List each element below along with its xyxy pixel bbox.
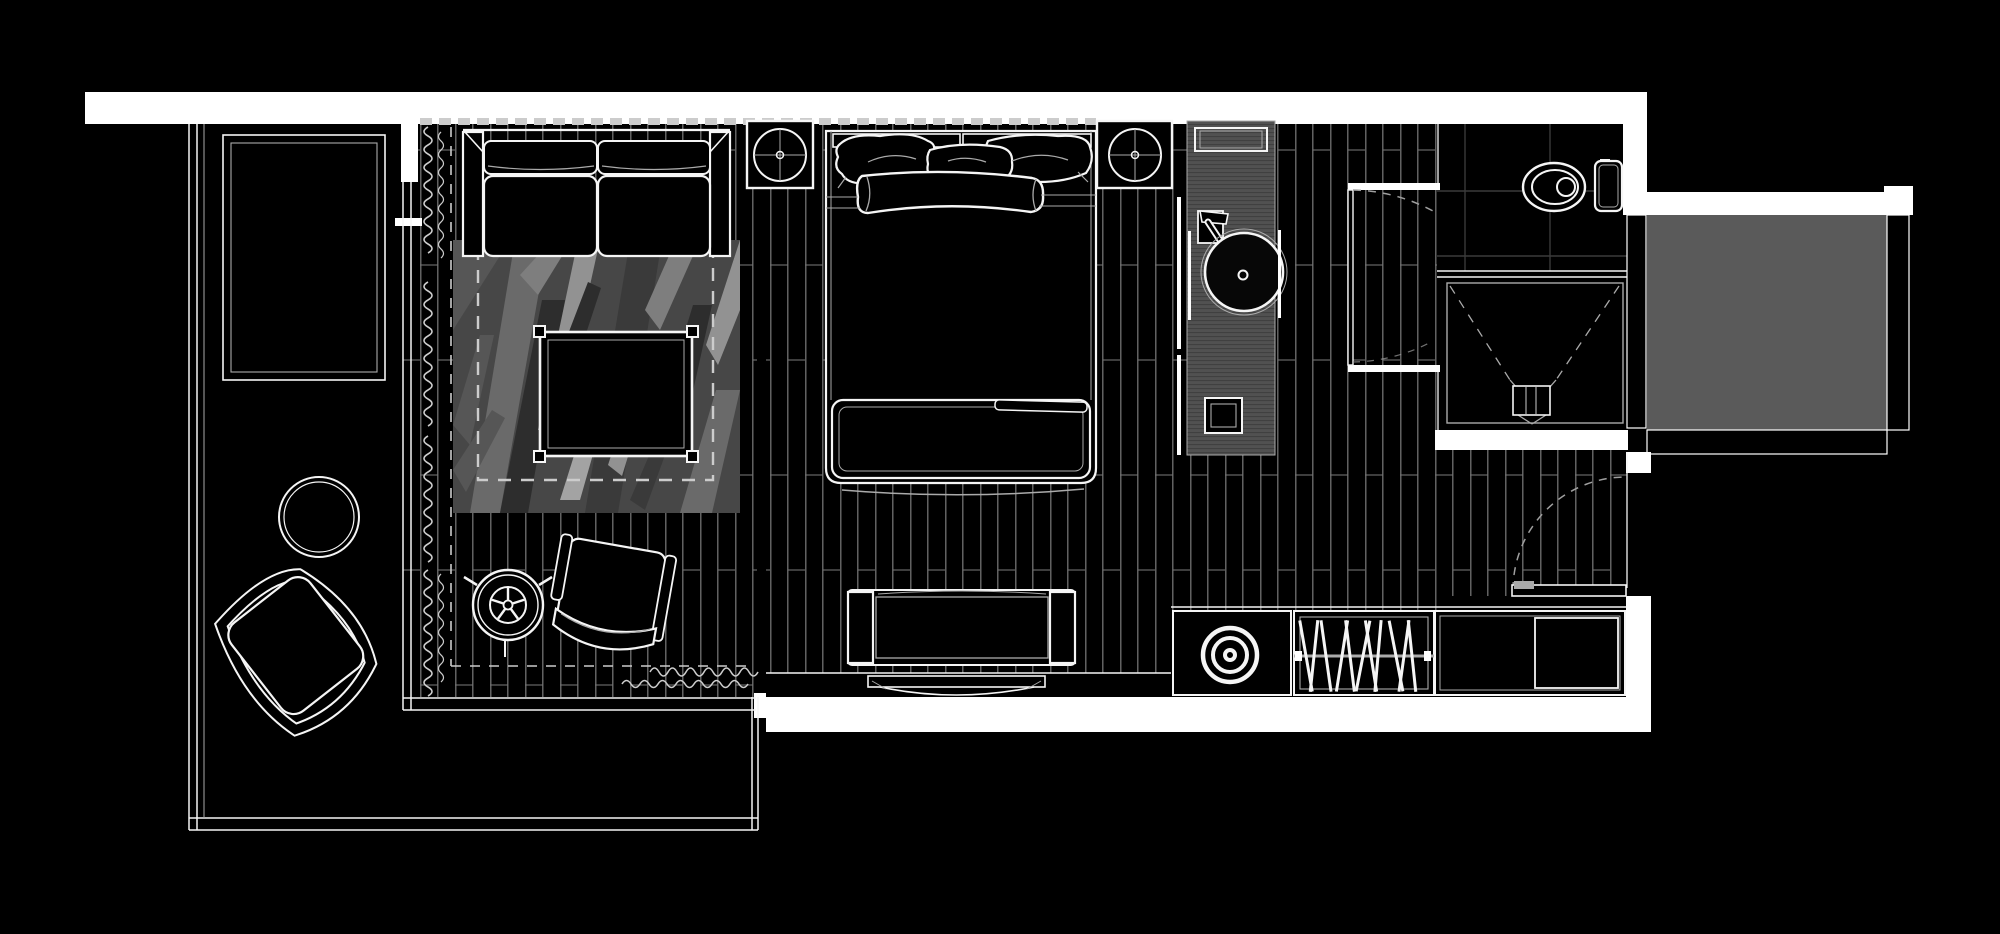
window-pier [401,120,418,182]
bathroom-right-wall [1623,124,1647,215]
round-side-table [279,477,359,557]
mat-fringe-right [1887,215,1909,430]
shower-drain [1513,386,1550,415]
coffee-table [534,326,698,462]
sofa [463,130,730,256]
vanity-accent-left [1188,231,1191,320]
cabinet-run [1171,607,1626,695]
double-bed [826,131,1096,495]
blanket-roll [857,172,1043,213]
lounge-chair [208,557,387,740]
table-lamp [1109,129,1161,181]
vanity-accent-right [1278,230,1281,318]
wardrobe-cabinet [1435,611,1625,695]
bath-door-stub-bottom [1348,365,1440,372]
entry-door-jamb [1626,452,1651,473]
mat-fringe-bottom [1647,430,1887,454]
floor-plan-canvas [0,0,2000,934]
vanity-counter [1187,121,1287,455]
toilet [1523,160,1622,211]
table-lamp [754,129,806,181]
closet-panel-upper [1177,197,1181,349]
wall-tv [868,676,1045,695]
foot-duvet [832,400,1090,478]
wing-bottom-wall [403,698,756,710]
bathroom-bottom-wall [1435,430,1628,450]
wardrobe-hanger-cabinet [1294,611,1434,695]
porch-top-wall [1647,192,1887,215]
closet-panel-lower [1177,355,1181,455]
bath-door-stub-top [1348,183,1440,190]
wardrobe-sink-cabinet [1173,611,1291,695]
right-wall [1626,596,1651,732]
media-bench [848,590,1075,665]
window-sill-stub [395,218,422,226]
vanity-box [1205,398,1242,433]
bottom-wall [766,697,1651,732]
nightstand-right [1097,121,1172,188]
wing-wall-cap [754,693,766,718]
floor-plan-drawing [0,0,2000,934]
entry-door-handle [1514,581,1534,589]
mat-fringe-left [1627,215,1646,428]
round-basin [1201,229,1287,315]
outdoor-porch-mat [1627,215,1909,454]
nightstand-left [747,121,813,188]
porch-wall-endblock [1884,186,1913,215]
planter-daybed [223,135,385,380]
